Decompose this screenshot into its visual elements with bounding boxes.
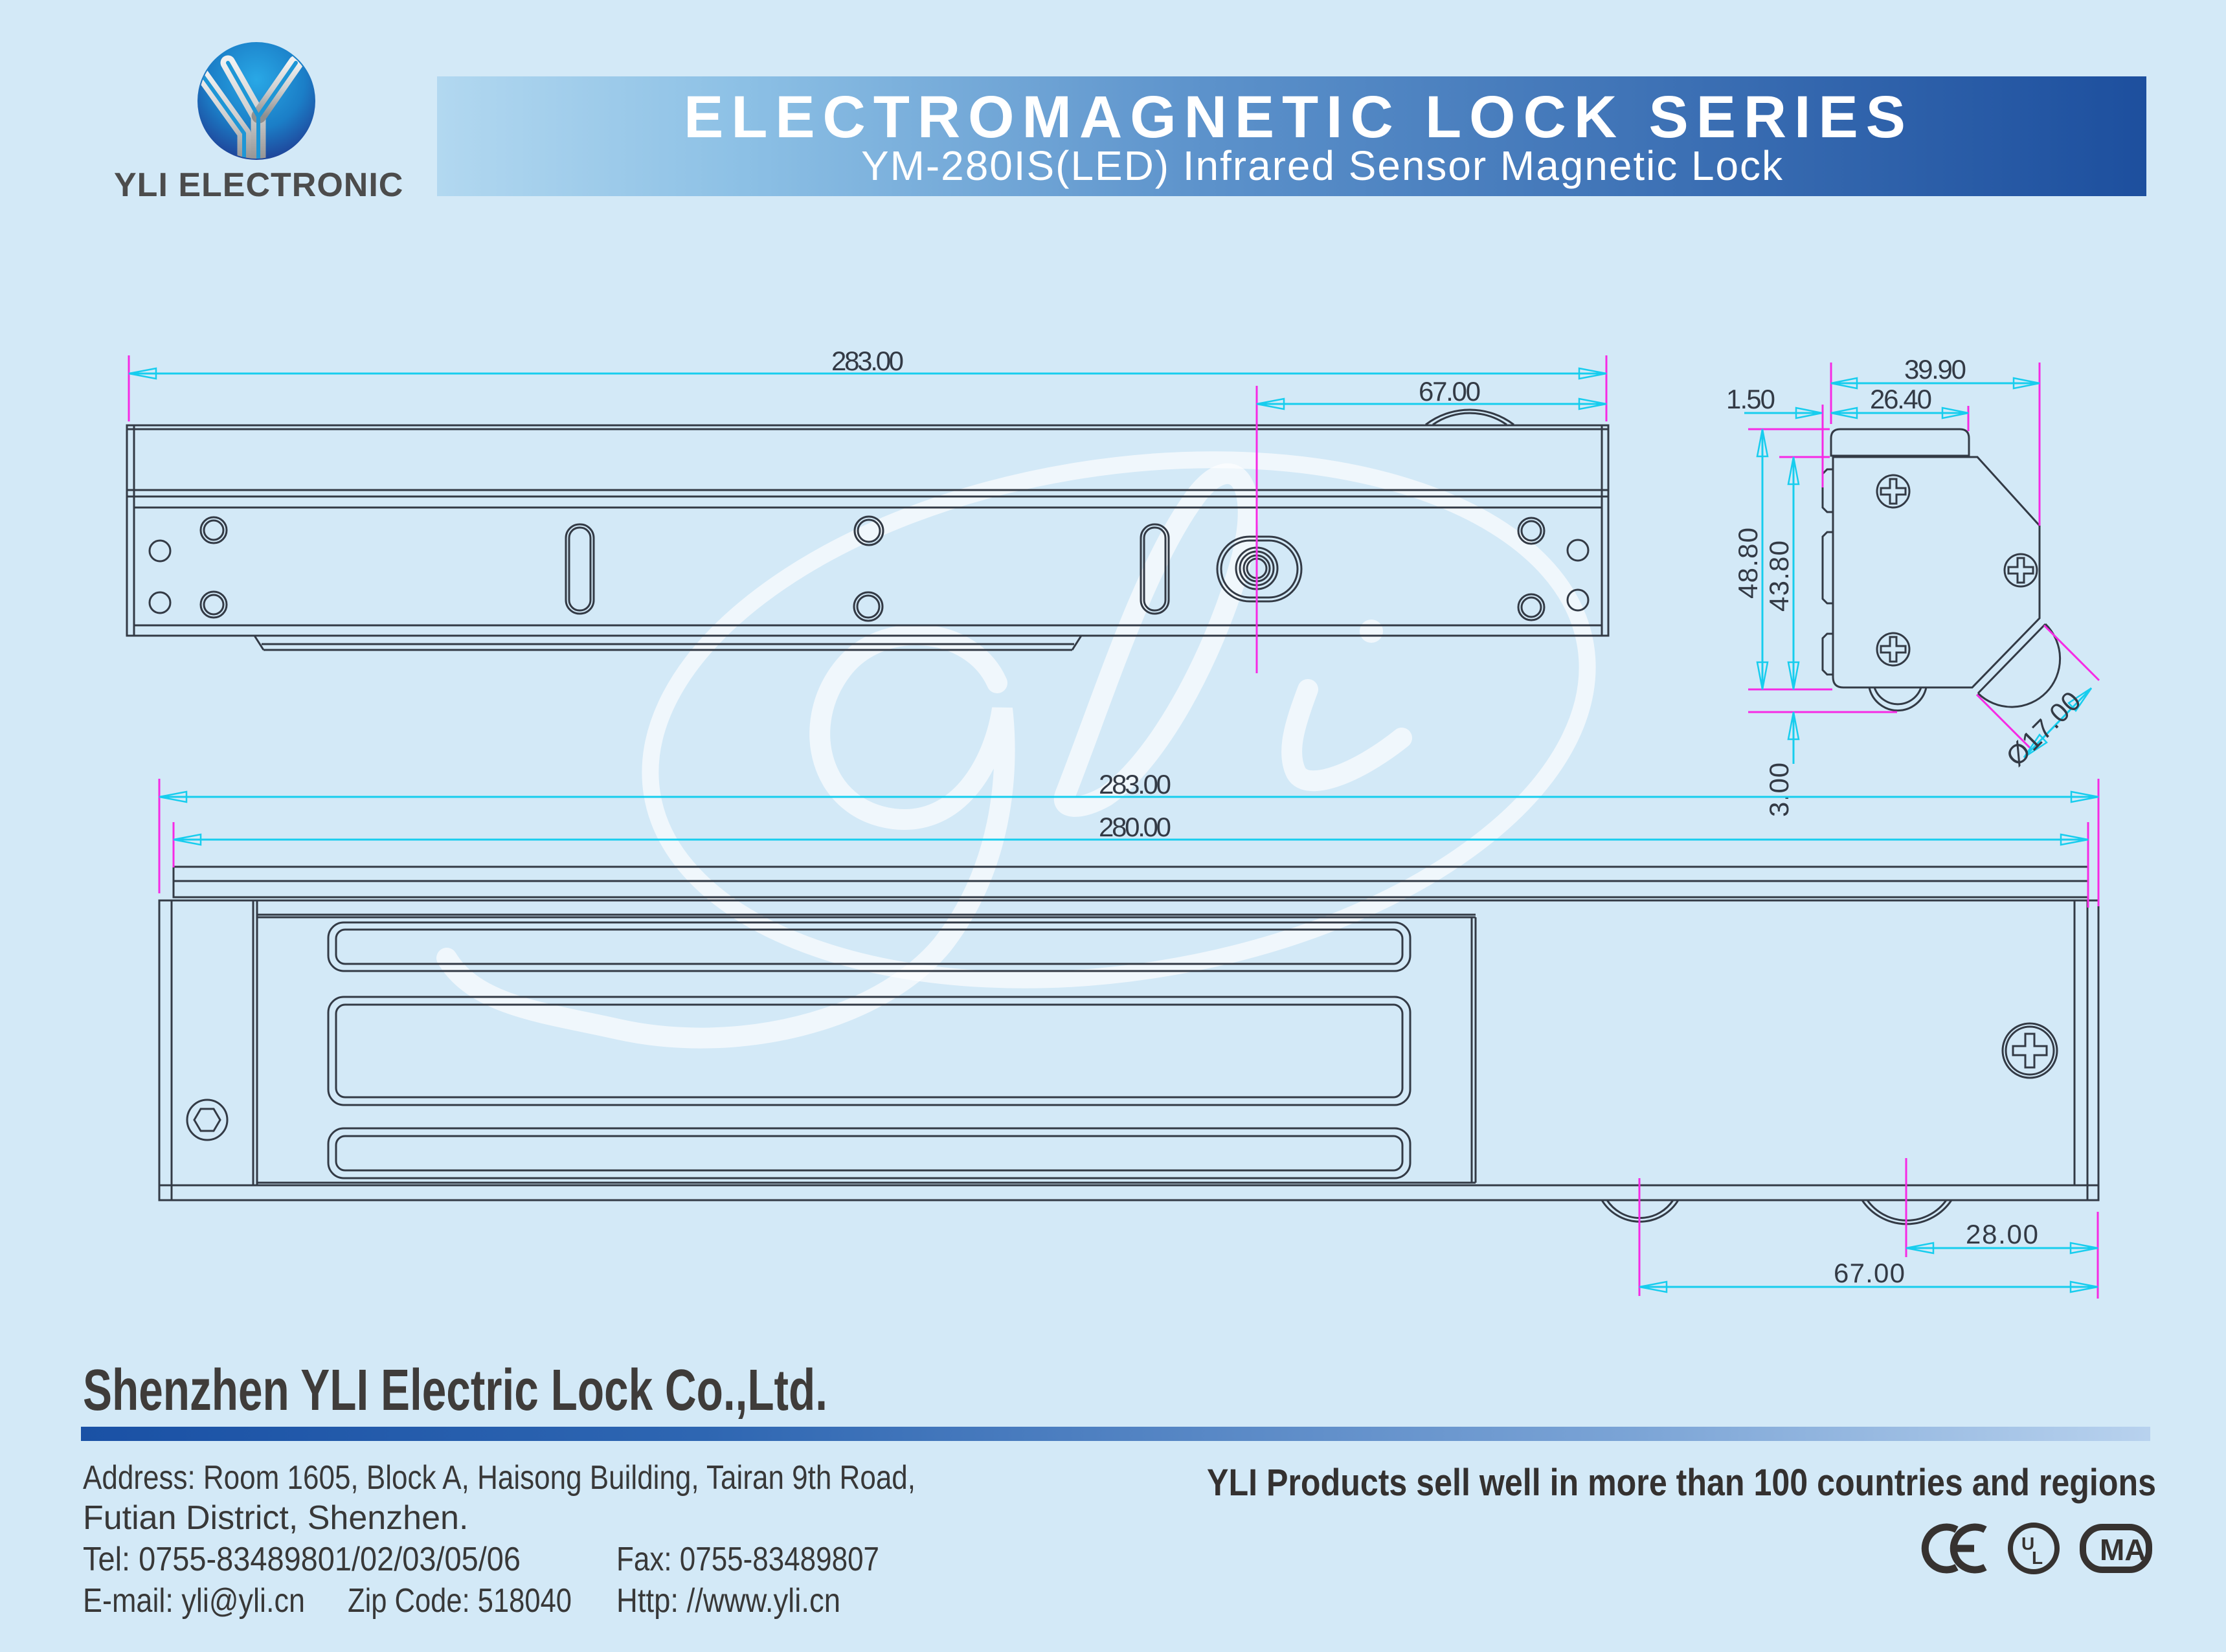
svg-text:283.00: 283.00: [1099, 769, 1171, 799]
svg-text:YLI ELECTRONIC: YLI ELECTRONIC: [114, 166, 403, 204]
svg-text:Futian District, Shenzhen.: Futian District, Shenzhen.: [83, 1499, 468, 1537]
svg-text:YLI Products sell well in more: YLI Products sell well in more than 100 …: [1207, 1462, 2156, 1504]
svg-text:E-mail: yli@yli.cn: E-mail: yli@yli.cn: [83, 1582, 305, 1620]
svg-text:3.00: 3.00: [1764, 763, 1794, 817]
svg-text:Address: Room 1605, Block A, H: Address: Room 1605, Block A, Haisong Bui…: [83, 1459, 916, 1497]
svg-text:Tel: 0755-83489801/02/03/05/06: Tel: 0755-83489801/02/03/05/06: [83, 1541, 521, 1578]
svg-text:Zip Code: 518040: Zip Code: 518040: [348, 1582, 572, 1620]
svg-text:283.00: 283.00: [831, 346, 904, 376]
svg-text:67.00: 67.00: [1419, 376, 1481, 407]
svg-text:L: L: [2032, 1548, 2043, 1568]
svg-text:Http: //www.yli.cn: Http: //www.yli.cn: [616, 1582, 840, 1620]
svg-text:39.90: 39.90: [1904, 354, 1966, 385]
svg-text:67.00: 67.00: [1834, 1258, 1905, 1288]
svg-text:1.50: 1.50: [1726, 384, 1775, 414]
svg-text:MA: MA: [2100, 1533, 2146, 1567]
svg-text:280.00: 280.00: [1099, 812, 1171, 842]
svg-text:43.80: 43.80: [1764, 541, 1794, 612]
svg-text:Fax: 0755-83489807: Fax: 0755-83489807: [616, 1541, 879, 1578]
svg-text:48.80: 48.80: [1733, 528, 1763, 599]
svg-text:Shenzhen YLI Electric Lock Co.: Shenzhen YLI Electric Lock Co.,Ltd.: [83, 1358, 827, 1423]
svg-text:28.00: 28.00: [1966, 1219, 2038, 1249]
svg-text:26.40: 26.40: [1870, 384, 1932, 414]
